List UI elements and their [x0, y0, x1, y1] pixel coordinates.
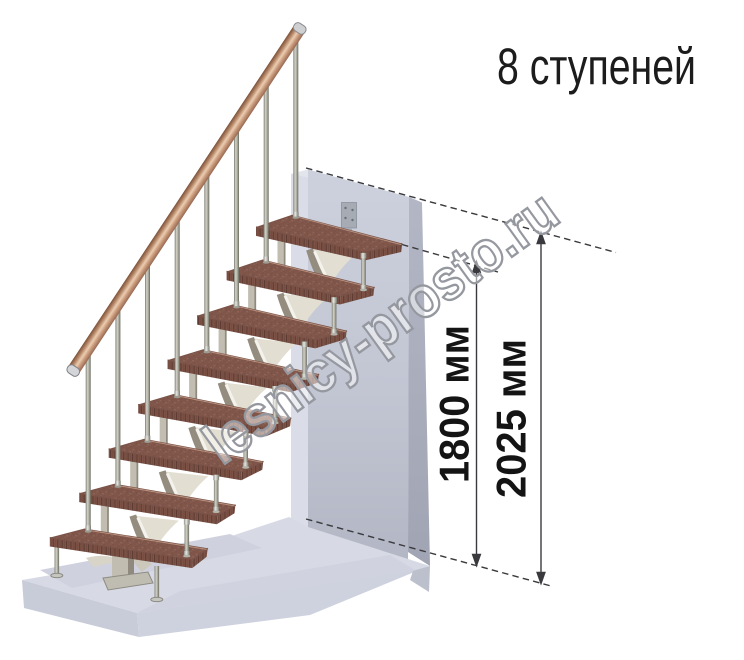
svg-text:8 ступеней: 8 ступеней: [497, 38, 696, 95]
svg-text:1800 мм: 1800 мм: [431, 325, 478, 483]
svg-text:2025 мм: 2025 мм: [488, 339, 535, 498]
